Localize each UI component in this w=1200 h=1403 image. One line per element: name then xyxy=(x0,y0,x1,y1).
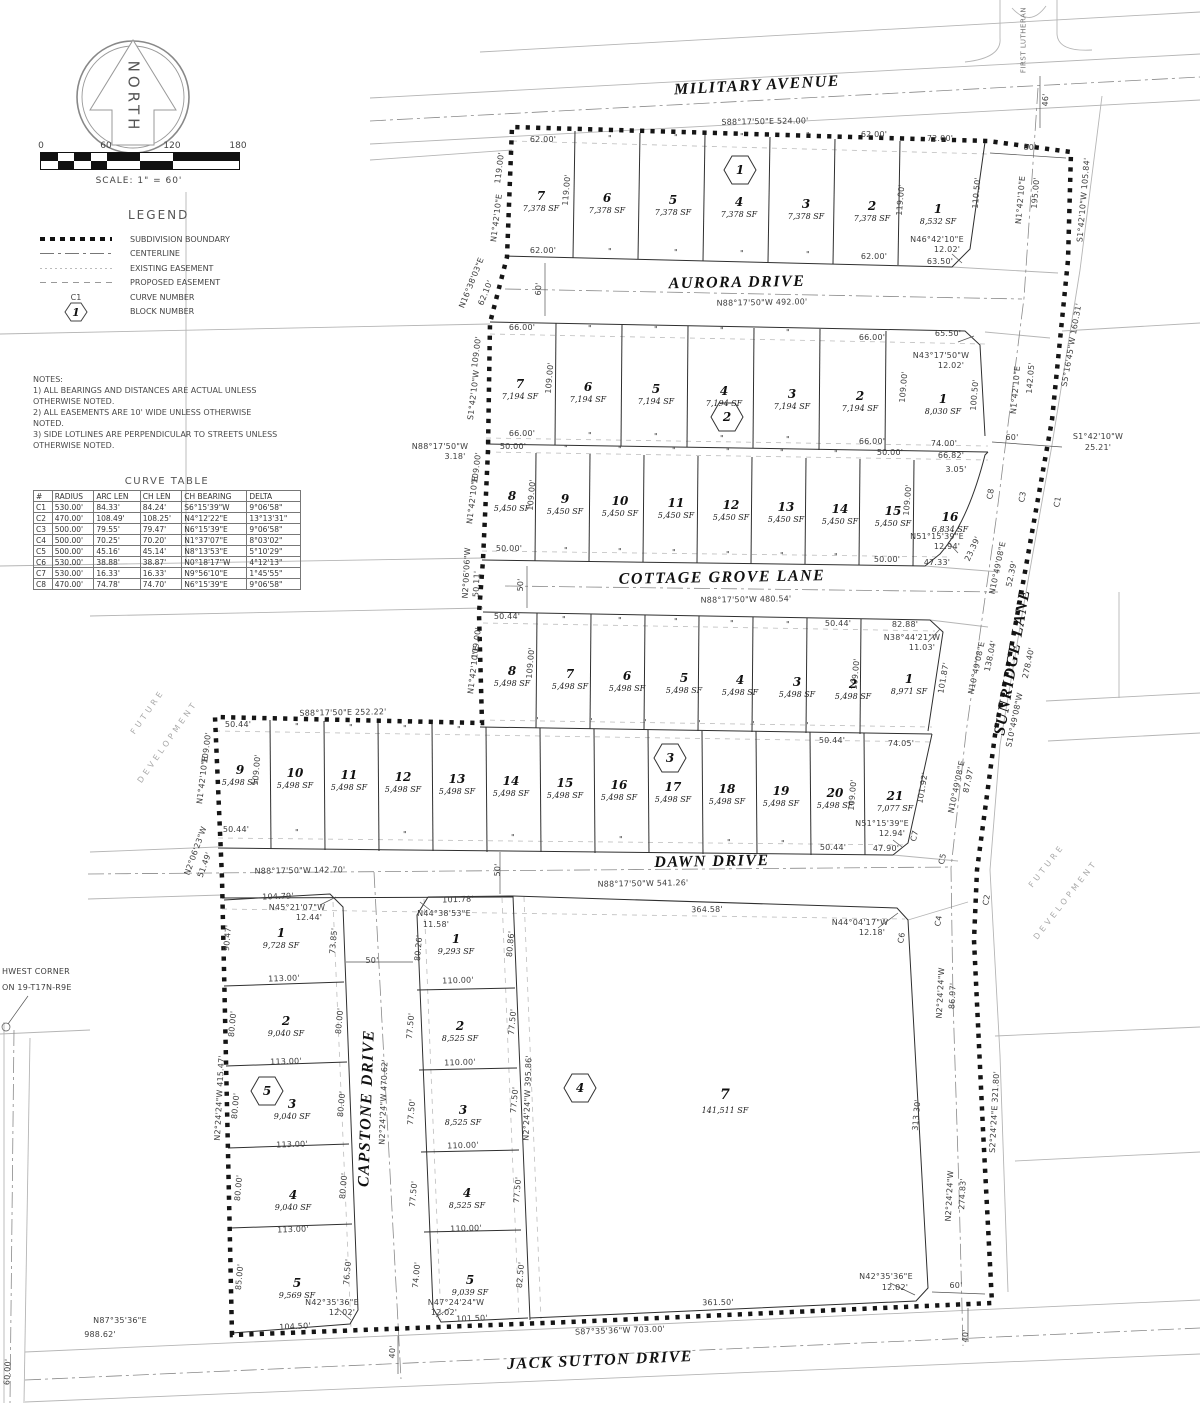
map-label: " xyxy=(403,725,407,733)
map-label: 12.02' xyxy=(938,362,964,370)
map-label: 109.00' xyxy=(526,647,537,679)
legend-item: 1 BLOCK NUMBER xyxy=(40,305,300,320)
map-label: " xyxy=(403,831,407,839)
curve-table-cell: 70.20' xyxy=(140,535,182,546)
map-label: ON 19-T17N-R9E xyxy=(2,984,72,992)
map-label: 110.00' xyxy=(444,1058,476,1067)
map-label: 142.05' xyxy=(1026,362,1037,394)
curve-table-cell: N4°12'22"E xyxy=(182,513,247,524)
curve-table-cell: 38.88' xyxy=(94,557,140,568)
map-label: 119.00' xyxy=(896,184,907,216)
curve-table-cell: 8°03'02" xyxy=(247,535,301,546)
map-label: 11.03' xyxy=(909,644,935,652)
curve-table-row: C2470.00'108.49'108.25'N4°12'22"E13°13'3… xyxy=(34,513,301,524)
curve-table-cell: N1°37'07"E xyxy=(182,535,247,546)
map-label: 80.00' xyxy=(231,1093,241,1120)
map-label: 25.21' xyxy=(1085,444,1111,452)
curve-table-cell: 9°06'58" xyxy=(247,524,301,535)
curve-table-cell: C3 xyxy=(34,524,53,535)
map-label: " xyxy=(751,721,755,729)
map-label: 62.00' xyxy=(861,253,887,261)
map-label: C3 xyxy=(1018,491,1028,503)
map-label: 52.39' xyxy=(1005,560,1018,587)
map-label: " xyxy=(697,720,701,728)
map-label: 72.00' xyxy=(927,135,953,143)
map-label: " xyxy=(588,432,592,440)
curve-table-cell: 1°45'55" xyxy=(247,568,301,579)
map-label: 3.18' xyxy=(444,453,465,461)
map-label: 5,450 SF xyxy=(875,520,911,528)
map-label: 12.94' xyxy=(879,830,905,838)
map-label: 74.00' xyxy=(412,1262,422,1289)
map-label: 119.00' xyxy=(562,174,573,206)
map-label: " xyxy=(535,717,539,725)
proposed-easement-symbol xyxy=(40,282,112,283)
map-label: 5 xyxy=(652,383,660,395)
map-label: 5,498 SF xyxy=(547,792,583,800)
map-label: S1°42'10"W 105.84' xyxy=(1076,157,1091,242)
scale-tick: 120 xyxy=(163,141,180,151)
map-label: 7,378 SF xyxy=(655,209,691,217)
map-label: 5 xyxy=(293,1277,301,1289)
map-label: 5,498 SF xyxy=(609,685,645,693)
map-label: 1 xyxy=(452,933,460,945)
map-label: 50.44' xyxy=(819,737,845,745)
map-label: 7,194 SF xyxy=(502,393,538,401)
curve-table-cell: N6°15'39"E xyxy=(182,524,247,535)
curve-table-cell: N9°56'10"E xyxy=(182,568,247,579)
map-label: MILITARY AVENUE xyxy=(674,74,841,99)
map-label: 9,040 SF xyxy=(268,1030,304,1038)
scale-caption: SCALE: 1" = 60' xyxy=(96,176,183,186)
map-label: 5,498 SF xyxy=(331,784,367,792)
map-label: 101.92' xyxy=(916,772,929,805)
map-label: 60' xyxy=(950,1282,963,1290)
map-label: N42°35'36"E xyxy=(859,1273,913,1281)
map-label: 5,450 SF xyxy=(602,510,638,518)
map-label: S1°42'10"W xyxy=(1073,433,1123,441)
map-label: N38°44'21"W xyxy=(884,634,941,642)
map-label: " xyxy=(834,553,838,561)
map-label: " xyxy=(834,450,838,458)
map-label: 77.50' xyxy=(513,1177,523,1204)
map-label: C4 xyxy=(934,915,944,927)
map-label: " xyxy=(726,551,730,559)
map-label: " xyxy=(608,135,612,143)
map-label: " xyxy=(672,447,676,455)
curve-table-cell: 500.00' xyxy=(52,535,94,546)
scale-tick: 180 xyxy=(229,141,246,151)
map-label: 313.30' xyxy=(912,1099,923,1131)
map-label: N88°17'50"W 480.54' xyxy=(701,595,792,605)
note-line: NOTES: xyxy=(33,374,313,385)
map-label: 5,498 SF xyxy=(666,687,702,695)
map-label: 364.58' xyxy=(691,906,723,915)
map-label: 74.00' xyxy=(931,440,957,448)
map-label: " xyxy=(720,435,724,443)
map-label: 1 xyxy=(939,393,947,405)
map-label: 113.00' xyxy=(270,1057,302,1066)
map-label: " xyxy=(608,248,612,256)
map-label: 50.44' xyxy=(223,826,249,834)
map-label: 7 xyxy=(566,668,574,680)
map-label: 63.50' xyxy=(927,258,953,266)
map-label: 66.00' xyxy=(859,334,885,342)
curve-table-header: DELTA xyxy=(247,491,301,502)
map-label: 101.78' xyxy=(442,895,474,904)
map-label: 62.00' xyxy=(530,136,556,144)
map-label: 12.94' xyxy=(934,543,960,551)
map-label: " xyxy=(786,329,790,337)
map-label: 14 xyxy=(503,775,520,787)
map-label: 109.00' xyxy=(545,362,556,394)
map-label: 5,498 SF xyxy=(655,796,691,804)
curve-table-title: CURVE TABLE xyxy=(33,476,301,487)
map-label: 1 xyxy=(905,673,913,685)
map-label: 1 xyxy=(934,203,942,215)
map-label: 5,498 SF xyxy=(763,800,799,808)
curve-table-cell: N8°13'53"E xyxy=(182,546,247,557)
map-label: 988.62' xyxy=(84,1331,116,1339)
map-label: 47.33' xyxy=(924,559,950,567)
curve-table-cell: 16.33' xyxy=(94,568,140,579)
map-label: 12.02' xyxy=(431,1309,457,1317)
map-label: N2°24'24"W 415.47' xyxy=(214,1055,226,1141)
map-label: 60.00' xyxy=(3,1359,12,1386)
map-label: N88°17'50"W 142.70' xyxy=(255,866,346,876)
map-label: 7 xyxy=(516,378,524,390)
map-label: 62.00' xyxy=(861,131,887,139)
legend-item-label: CENTERLINE xyxy=(130,249,180,258)
map-label: 5 xyxy=(263,1085,271,1097)
map-label: 7,378 SF xyxy=(721,211,757,219)
map-label: 11 xyxy=(668,497,685,509)
map-label: 5,498 SF xyxy=(552,683,588,691)
map-label: 77.50' xyxy=(406,1013,416,1040)
map-label: 4 xyxy=(735,196,743,208)
curve-table-cell: C2 xyxy=(34,513,53,524)
map-label: N2°24'24"W xyxy=(945,1170,956,1222)
map-label: 8,525 SF xyxy=(449,1202,485,1210)
map-label: 10 xyxy=(612,495,629,507)
map-label: S88°17'50"E 252.22' xyxy=(299,708,386,718)
map-label: 5,498 SF xyxy=(779,691,815,699)
map-label: " xyxy=(511,834,515,842)
map-label: 50.00' xyxy=(496,545,522,553)
map-label: 86.97' xyxy=(948,983,957,1010)
curve-table-header: # xyxy=(34,491,53,502)
map-label: 4 xyxy=(720,385,728,397)
map-label: " xyxy=(588,325,592,333)
subdivision-plat: NORTHMILITARY AVENUEAURORA DRIVECOTTAGE … xyxy=(0,0,1200,1403)
curve-table-cell: C1 xyxy=(34,502,53,513)
curve-table-cell: 9°06'58" xyxy=(247,502,301,513)
map-label: 8,525 SF xyxy=(445,1119,481,1127)
map-label: 50.44' xyxy=(825,620,851,628)
map-label: 113.00' xyxy=(276,1140,308,1149)
map-label: 3 xyxy=(666,752,674,764)
map-label: " xyxy=(781,840,785,848)
curve-table-header: ARC LEN xyxy=(94,491,140,502)
note-line: 1) ALL BEARINGS AND DISTANCES ARE ACTUAL… xyxy=(33,385,313,396)
map-label: 7,378 SF xyxy=(854,215,890,223)
map-label: N2°24'24"W xyxy=(936,967,947,1019)
map-label: 119.00' xyxy=(494,152,506,184)
map-label: 5,498 SF xyxy=(439,788,475,796)
legend-item-label: SUBDIVISION BOUNDARY xyxy=(130,235,230,244)
map-label: C1 xyxy=(1053,496,1063,508)
map-label: 6 xyxy=(623,670,631,682)
curve-table-cell: 84.33' xyxy=(94,502,140,513)
curve-table-cell: 38.87' xyxy=(140,557,182,568)
map-label: " xyxy=(806,132,810,140)
map-label: " xyxy=(654,433,658,441)
map-label: 73.85' xyxy=(329,928,339,955)
map-label: DAWN DRIVE xyxy=(654,853,770,871)
map-label: S2°24'24"E 321.80' xyxy=(989,1071,1001,1153)
legend-item: CENTERLINE xyxy=(40,247,300,262)
map-label: 80.00' xyxy=(337,1091,347,1118)
map-label: 104.50' xyxy=(279,1322,311,1332)
map-label: 109.00' xyxy=(252,754,263,786)
scale-tick: 0 xyxy=(38,141,44,151)
map-label: 109.00' xyxy=(471,336,483,368)
map-label: N10°49'08"E xyxy=(989,541,1008,595)
map-label: " xyxy=(727,839,731,847)
scale-tick: 60 xyxy=(100,141,111,151)
map-label: N47°24'24"W xyxy=(428,1299,485,1307)
map-label: " xyxy=(740,250,744,258)
map-label: FUTURE xyxy=(130,688,167,736)
map-label: " xyxy=(564,445,568,453)
map-label: 80.00' xyxy=(234,1175,244,1202)
map-label: 9,728 SF xyxy=(263,942,299,950)
map-label: 1 xyxy=(277,927,285,939)
map-label: 74.05' xyxy=(888,740,914,748)
map-label: 50' xyxy=(366,957,379,965)
curve-table-cell: C4 xyxy=(34,535,53,546)
curve-table-header: RADIUS xyxy=(52,491,94,502)
map-label: 2 xyxy=(856,390,864,402)
curve-table-cell: 108.25' xyxy=(140,513,182,524)
scale-bar xyxy=(40,152,240,170)
map-label: 77.50' xyxy=(409,1181,419,1208)
map-label: 47.90' xyxy=(873,845,899,853)
curve-table-cell: 530.00' xyxy=(52,502,94,513)
map-label: C5 xyxy=(938,853,948,865)
map-label: N2°24'24"W 395.86' xyxy=(523,1055,534,1141)
curve-table-row: C7530.00'16.33'16.33'N9°56'10"E1°45'55" xyxy=(34,568,301,579)
map-label: 3 xyxy=(288,1098,296,1110)
map-label: 85.00' xyxy=(235,1264,245,1291)
curve-table-row: C5500.00'45.16'45.14'N8°13'53"E5°10'29" xyxy=(34,546,301,557)
map-label: S88°17'50"E 524.00' xyxy=(721,117,808,127)
map-label: 5,498 SF xyxy=(277,782,313,790)
map-label: 80.00' xyxy=(335,1008,345,1035)
map-label: 50.11' xyxy=(472,571,481,598)
map-label: 82.50' xyxy=(516,1262,526,1289)
map-label: " xyxy=(643,719,647,727)
map-label: 113.00' xyxy=(277,1225,309,1234)
curve-table-cell: 108.49' xyxy=(94,513,140,524)
map-label: 6 xyxy=(603,192,611,204)
map-label: N43°17'50"W xyxy=(913,352,970,360)
map-label: 7 xyxy=(720,1088,730,1102)
map-label: 3 xyxy=(802,198,810,210)
map-label: 100.50' xyxy=(970,379,981,411)
map-label: 11.58' xyxy=(423,921,449,929)
map-label: 50.44' xyxy=(494,613,520,621)
map-label: " xyxy=(349,724,353,732)
map-label: JACK SUTTON DRIVE xyxy=(507,1349,694,1373)
map-label: C7 xyxy=(910,830,920,842)
curve-table-cell: 500.00' xyxy=(52,546,94,557)
curve-table-cell: C6 xyxy=(34,557,53,568)
map-label: 141,511 SF xyxy=(702,1107,749,1115)
map-label: " xyxy=(564,547,568,555)
map-label: " xyxy=(806,251,810,259)
map-label: 274.83' xyxy=(958,1178,968,1210)
map-label: 101.87' xyxy=(937,662,950,695)
map-label: 5 xyxy=(466,1274,474,1286)
map-label: 8,030 SF xyxy=(925,408,961,416)
map-label: " xyxy=(740,133,744,141)
map-label: 60' xyxy=(1006,434,1019,442)
map-label: 12.02' xyxy=(882,1284,908,1292)
map-label: 10 xyxy=(287,767,304,779)
map-label: " xyxy=(726,448,730,456)
boundary-line-symbol xyxy=(40,237,112,241)
map-label: 2 xyxy=(282,1015,290,1027)
curve-table-cell: 74.78' xyxy=(94,579,140,590)
map-label: 12.02' xyxy=(329,1309,355,1317)
map-label: 80.86' xyxy=(506,931,516,958)
block-number-symbol: 1 xyxy=(40,301,112,323)
map-label: 109.00' xyxy=(903,484,914,516)
map-label: 3 xyxy=(459,1104,467,1116)
map-label: NORTH xyxy=(126,61,141,134)
curve-table-cell: 79.55' xyxy=(94,524,140,535)
map-label: 4 xyxy=(736,674,744,686)
map-label: 11 xyxy=(341,769,358,781)
map-label: 109.00' xyxy=(899,371,910,403)
map-label: 5,498 SF xyxy=(494,680,530,688)
map-label: 50.00' xyxy=(500,443,526,451)
map-label: " xyxy=(295,723,299,731)
map-label: 51.49' xyxy=(197,851,214,878)
map-label: " xyxy=(674,618,678,626)
map-label: 5,450 SF xyxy=(658,512,694,520)
notes: NOTES: 1) ALL BEARINGS AND DISTANCES ARE… xyxy=(33,374,313,451)
curve-table-cell: 470.00' xyxy=(52,579,94,590)
curve-table-cell: C5 xyxy=(34,546,53,557)
map-label: 80.26' xyxy=(414,935,424,962)
curve-table-cell: 530.00' xyxy=(52,557,94,568)
note-line: OTHERWISE NOTED. xyxy=(33,440,313,451)
curve-table-row: C3500.00'79.55'79.47'N6°15'39"E9°06'58" xyxy=(34,524,301,535)
map-label: C6 xyxy=(897,932,907,944)
map-label: FUTURE xyxy=(1028,843,1067,890)
map-label: N44°38'53"E xyxy=(417,910,471,918)
map-label: 3 xyxy=(788,388,796,400)
map-label: 21 xyxy=(887,790,904,802)
map-label: 9,293 SF xyxy=(438,948,474,956)
map-label: 110.00' xyxy=(450,1224,482,1233)
note-line: 3) SIDE LOTLINES ARE PERPENDICULAR TO ST… xyxy=(33,429,313,440)
map-label: 14 xyxy=(832,503,849,515)
legend-item: SUBDIVISION BOUNDARY xyxy=(40,232,300,247)
map-label: 5,450 SF xyxy=(547,508,583,516)
map-label: N46°42'10"E xyxy=(910,236,964,244)
map-label: 17 xyxy=(665,781,682,793)
map-label: 50.44' xyxy=(225,721,251,729)
map-label: FIRST LUTHERAN xyxy=(1021,7,1028,73)
map-label: " xyxy=(618,617,622,625)
map-label: 12 xyxy=(723,499,740,511)
curve-table-header: CH LEN xyxy=(140,491,182,502)
map-label: N88°17'50"W 541.26' xyxy=(598,879,689,889)
map-label: 3 xyxy=(793,676,801,688)
map-label: 65.50' xyxy=(935,330,961,338)
map-label: 15 xyxy=(557,777,574,789)
map-label: 4 xyxy=(289,1189,297,1201)
map-label: 7,194 SF xyxy=(706,400,742,408)
map-label: 15 xyxy=(885,505,902,517)
map-label: 4 xyxy=(576,1082,584,1094)
map-label: 7,194 SF xyxy=(570,396,606,404)
legend-item-label: EXISTING EASEMENT xyxy=(130,264,213,273)
curve-table-row: C8470.00'74.78'74.70'N6°15'39"E9°06'58" xyxy=(34,579,301,590)
curve-table-cell: 4°12'13" xyxy=(247,557,301,568)
map-label: 6 xyxy=(584,381,592,393)
map-label: 9,040 SF xyxy=(275,1204,311,1212)
curve-table-cell: 45.14' xyxy=(140,546,182,557)
legend-item-label: BLOCK NUMBER xyxy=(130,307,194,316)
legend: LEGEND SUBDIVISION BOUNDARY CENTERLINE E… xyxy=(40,208,300,319)
map-label: N1°42'10"E xyxy=(1010,366,1022,415)
map-label: 2 xyxy=(456,1020,464,1032)
note-line: OTHERWISE NOTED. xyxy=(33,396,313,407)
map-label: C8 xyxy=(986,488,996,500)
map-label: 40' xyxy=(962,1329,971,1342)
map-label: 9 xyxy=(561,493,569,505)
map-label: 5,498 SF xyxy=(385,786,421,794)
map-label: 5,498 SF xyxy=(722,689,758,697)
map-label: 110.00' xyxy=(447,1141,479,1150)
map-label: 7,378 SF xyxy=(523,205,559,213)
curve-table-cell: 74.70' xyxy=(140,579,182,590)
map-label: 2 xyxy=(723,411,731,423)
map-label: 62.00' xyxy=(530,247,556,255)
map-label: " xyxy=(654,326,658,334)
map-label: 5,498 SF xyxy=(835,693,871,701)
map-label: 109.00' xyxy=(527,479,538,511)
map-label: " xyxy=(805,722,809,730)
curve-table-cell: 45.16' xyxy=(94,546,140,557)
map-label: N51°15'39"E xyxy=(855,820,909,828)
map-label: " xyxy=(618,446,622,454)
map-label: 110.50' xyxy=(972,177,983,209)
map-label: " xyxy=(780,449,784,457)
map-label: 5,450 SF xyxy=(713,514,749,522)
map-label: 76.50' xyxy=(343,1259,353,1286)
legend-title: LEGEND xyxy=(128,208,300,222)
map-label: 66.82' xyxy=(938,452,964,460)
map-label: 5,498 SF xyxy=(601,794,637,802)
map-label: 110.00' xyxy=(442,976,474,985)
map-label: " xyxy=(720,327,724,335)
map-label: 5,450 SF xyxy=(768,516,804,524)
